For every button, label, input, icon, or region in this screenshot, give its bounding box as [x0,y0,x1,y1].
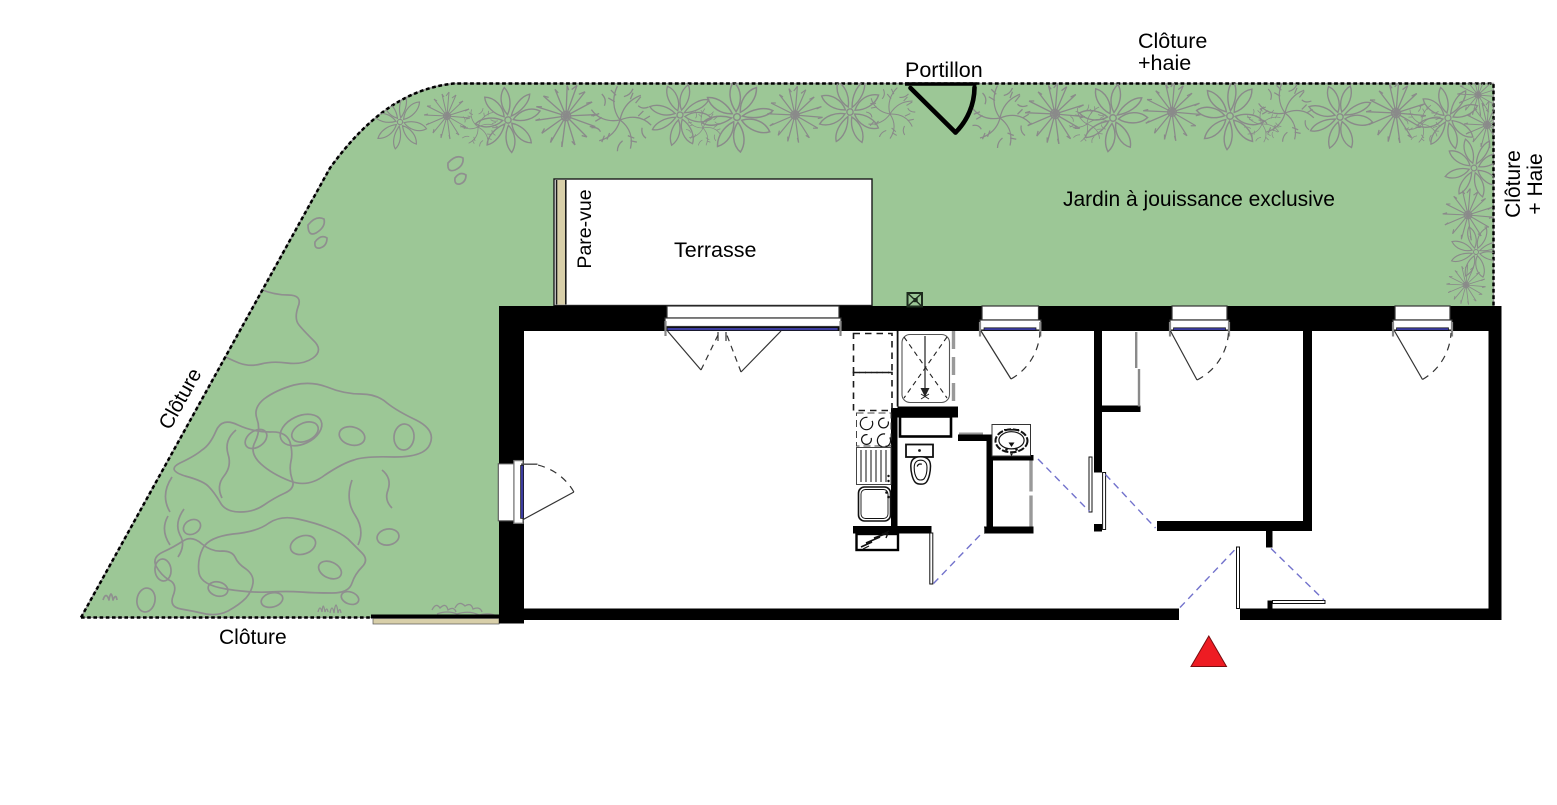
svg-text:Jardin à jouissance exclusive: Jardin à jouissance exclusive [1063,188,1335,211]
svg-text:+ Haie: + Haie [1524,153,1547,214]
svg-text:Clôture: Clôture [219,626,287,649]
svg-text:Clôture: Clôture [1502,150,1525,218]
svg-text:Clôture: Clôture [1138,29,1207,53]
svg-text:+haie: +haie [1138,51,1191,75]
svg-text:Terrasse: Terrasse [674,238,756,262]
svg-text:Pare-vue: Pare-vue [574,189,596,268]
svg-text:Portillon: Portillon [905,58,983,82]
